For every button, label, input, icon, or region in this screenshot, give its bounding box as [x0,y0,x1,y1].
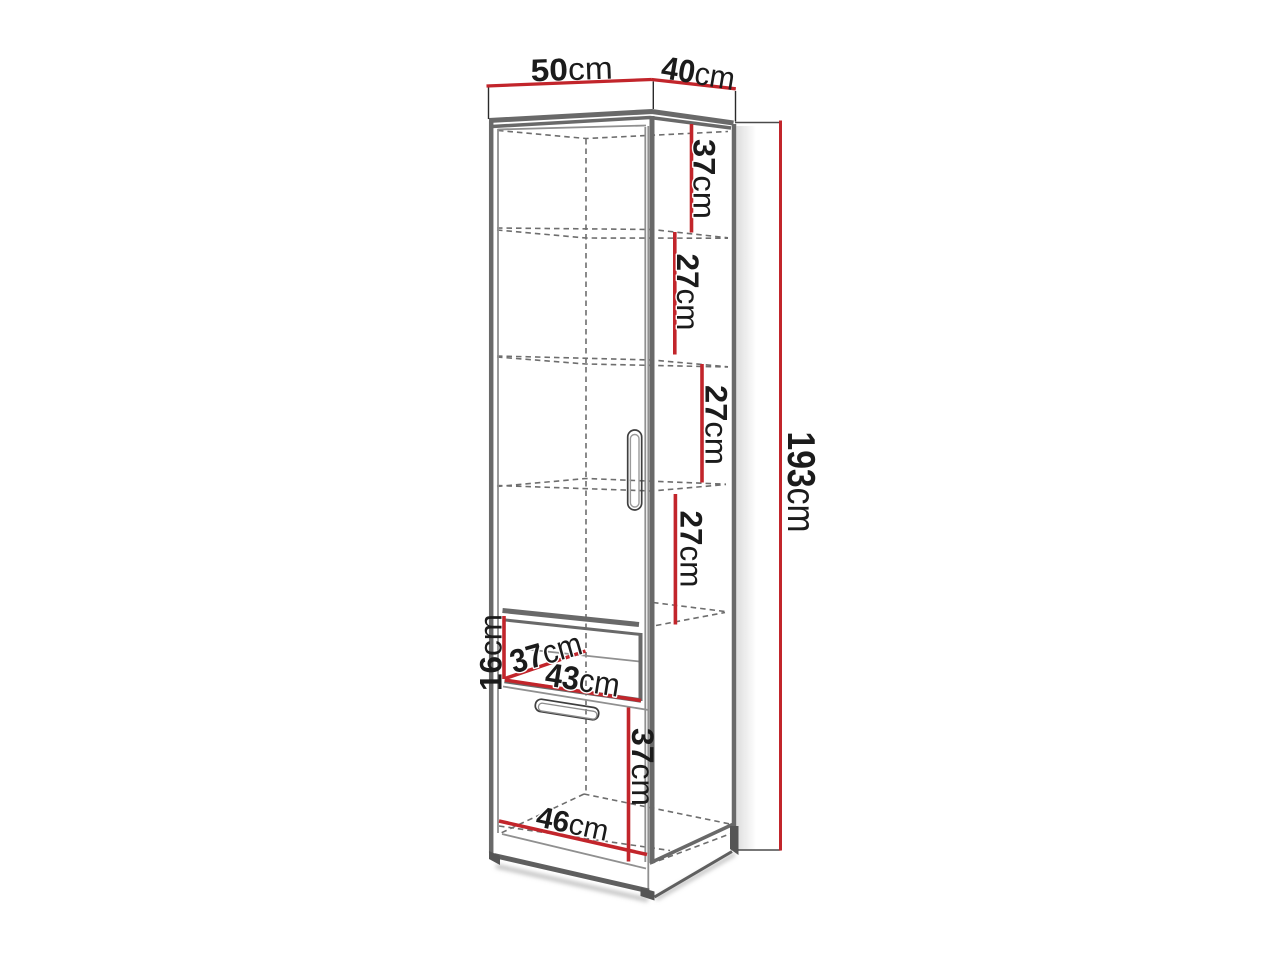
svg-text:37cm: 37cm [625,728,661,806]
svg-text:27cm: 27cm [670,254,706,331]
svg-text:37cm: 37cm [687,139,723,219]
svg-text:16cm: 16cm [473,614,509,691]
svg-text:27cm: 27cm [699,385,735,465]
svg-text:50cm: 50cm [530,50,613,89]
svg-text:27cm: 27cm [674,511,710,588]
svg-text:193cm: 193cm [779,432,822,533]
